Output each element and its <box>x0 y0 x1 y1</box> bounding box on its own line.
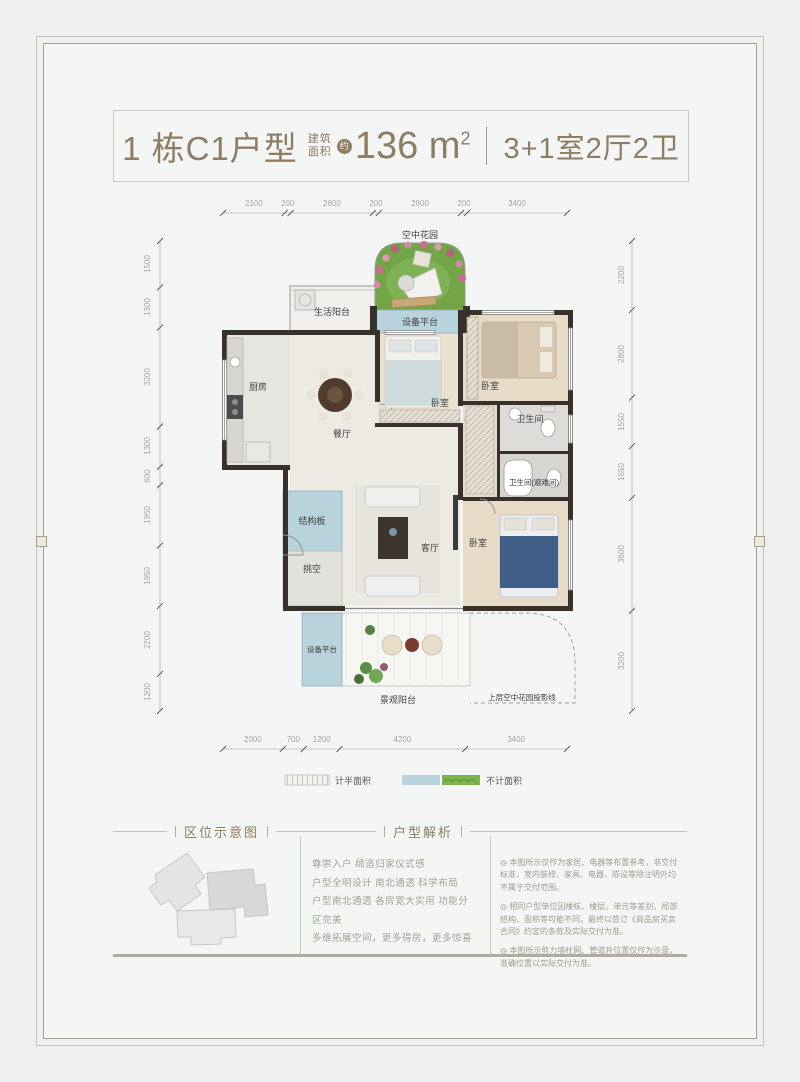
analysis-line: 户型南北通透 各房宽大实用 功能分区完美 <box>312 893 478 930</box>
header-tick <box>461 826 462 837</box>
disclaimer-notes: ◎ 本图所示仅作为家居、电器等布置参考，非交付标准，室内装修、家具、电器、陈设等… <box>500 857 680 977</box>
approx-badge: 约 <box>337 139 352 154</box>
header-tick <box>267 826 268 837</box>
dim-left-6: 1950 <box>143 567 152 585</box>
dim-top-5: 200 <box>457 199 471 208</box>
dim-left-1: 1300 <box>143 298 152 316</box>
dim-right-4: 3600 <box>617 545 626 563</box>
label-living: 客厅 <box>421 542 439 553</box>
dim-left-0: 1500 <box>143 255 152 273</box>
label-life-balcony: 生活阳台 <box>314 306 350 317</box>
dim-right-3: 1650 <box>617 463 626 481</box>
label-structure-board: 结构板 <box>298 515 325 526</box>
label-bedroom-mid: 卧室 <box>431 397 449 408</box>
label-void: 挑空 <box>303 563 321 574</box>
note-item: ◎ 本图所示剪力墙柱网、管道井位置仅作为示意，准确位置以实际交付为准。 <box>500 945 680 970</box>
label-equip-bottom: 设备平台 <box>307 644 337 654</box>
area-value: 136 m2 <box>355 125 471 168</box>
dim-left-5: 1950 <box>143 506 152 524</box>
area-sup: 2 <box>460 128 470 148</box>
location-section-title: 区位示意图 <box>184 822 259 841</box>
label-projection: 上层空中花园投影线 <box>488 692 556 702</box>
analysis-text: 尊崇入户 缔造归家仪式感 户型全明设计 南北通透 科学布局 户型南北通透 各房宽… <box>312 856 478 949</box>
analysis-line: 多维拓展空间，更多得房，更多惊喜 <box>312 930 478 949</box>
header-tick <box>175 826 176 837</box>
dim-left-2: 3200 <box>143 368 152 386</box>
location-map-svg <box>125 845 290 950</box>
analysis-line: 户型全明设计 南北通透 科学布局 <box>312 875 478 894</box>
dim-left-3: 1300 <box>143 437 152 455</box>
analysis-section-title: 户型解析 <box>393 822 453 841</box>
unit-title: 1 栋C1户型 <box>122 122 298 170</box>
dim-bottom-0: 2000 <box>244 735 262 744</box>
header-line-2 <box>276 831 376 832</box>
dim-bottom-4: 3400 <box>507 735 525 744</box>
note-item: ◎ 相同户型单位因楼栋、楼层、单元等差别，局部结构、面积等可能不同，最终以签订《… <box>500 901 680 938</box>
label-kitchen: 厨房 <box>249 381 267 392</box>
dim-bottom-3: 4200 <box>394 735 412 744</box>
label-bedroom-top-right: 卧室 <box>481 380 499 391</box>
area-label-line2: 面积 <box>308 146 332 159</box>
dim-bottom-2: 1200 <box>313 735 331 744</box>
dim-top-1: 200 <box>281 199 295 208</box>
legend-half-label: 计半面积 <box>335 775 371 786</box>
building-block-1 <box>149 853 205 911</box>
dim-top-6: 3400 <box>508 199 526 208</box>
dim-right-0: 2200 <box>617 266 626 284</box>
dim-left-8: 1200 <box>143 683 152 701</box>
plan-legend: 计半面积 不计面积 <box>285 775 522 786</box>
dim-top-0: 2100 <box>245 199 263 208</box>
projection-outline <box>470 613 575 703</box>
label-bath1: 卫生间 <box>516 413 543 424</box>
title-box: 1 栋C1户型 建筑 面积 约 136 m2 3+1室2厅2卫 <box>113 110 689 182</box>
dim-top-2: 2800 <box>323 199 341 208</box>
dim-left-4: 600 <box>143 469 152 483</box>
left-edge-ornament <box>36 536 47 547</box>
header-tick <box>384 826 385 837</box>
label-dining: 餐厅 <box>333 428 351 439</box>
label-bath2: 卫生间(避难间) <box>509 477 559 487</box>
header-line-3 <box>470 831 687 832</box>
location-map <box>125 845 290 950</box>
dim-top-3: 200 <box>369 199 383 208</box>
label-sky-garden: 空中花园 <box>402 229 438 240</box>
room-count: 3+1室2厅2卫 <box>503 125 679 167</box>
floorplan: 2100 200 2800 200 2800 200 3400 2000 700… <box>130 190 690 802</box>
label-view-balcony: 景观阳台 <box>380 694 416 705</box>
legend-blue-swatch <box>402 775 440 785</box>
dim-top-4: 2800 <box>411 199 429 208</box>
dim-left-7: 2200 <box>143 631 152 649</box>
section-header-row: 区位示意图 户型解析 <box>113 822 687 841</box>
dim-right-5: 3200 <box>617 652 626 670</box>
dim-right-2: 1550 <box>617 413 626 431</box>
label-equip-top: 设备平台 <box>402 316 438 327</box>
area-label: 建筑 面积 <box>308 133 332 158</box>
label-bedroom-bottom: 卧室 <box>469 537 487 548</box>
dim-right-1: 2800 <box>617 345 626 363</box>
area-number: 136 m <box>355 125 461 167</box>
dim-bottom-1: 700 <box>287 735 301 744</box>
title-divider <box>486 127 487 165</box>
sky-garden <box>374 241 467 310</box>
analysis-line: 尊崇入户 缔造归家仪式感 <box>312 856 478 875</box>
building-block-3 <box>177 909 236 945</box>
section-divider-2 <box>490 836 491 956</box>
header-line-1 <box>113 831 167 832</box>
legend-excluded-label: 不计面积 <box>486 775 522 786</box>
area-label-line1: 建筑 <box>308 133 332 146</box>
section-divider-1 <box>300 836 301 956</box>
bottom-rule <box>113 954 687 957</box>
right-edge-ornament <box>754 536 765 547</box>
note-item: ◎ 本图所示仅作为家居、电器等布置参考，非交付标准，室内装修、家具、电器、陈设等… <box>500 857 680 894</box>
floorplan-svg: 2100 200 2800 200 2800 200 3400 2000 700… <box>130 190 690 802</box>
legend-half-swatch <box>285 775 329 785</box>
poster-page: 1 栋C1户型 建筑 面积 约 136 m2 3+1室2厅2卫 2 <box>0 0 800 1082</box>
